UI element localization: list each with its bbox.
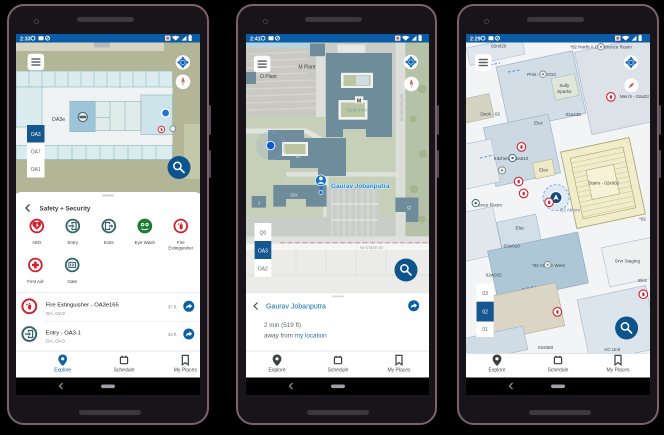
- svg-text:Entry - OA3-1: Entry - OA3-1: [46, 330, 81, 336]
- svg-text:Explore: Explore: [54, 368, 71, 374]
- svg-text:Schedule: Schedule: [548, 368, 569, 374]
- svg-text:away from my location: away from my location: [264, 333, 327, 340]
- svg-text:O Plant: O Plant: [260, 74, 277, 80]
- svg-text:Exits: Exits: [104, 240, 115, 245]
- svg-text:M Plant: M Plant: [298, 65, 316, 71]
- svg-text:O: O: [296, 154, 300, 160]
- svg-text:Elec: Elec: [516, 225, 526, 230]
- svg-text:Gaurav Jobanputra: Gaurav Jobanputra: [266, 304, 326, 311]
- svg-text:Fire Extinguisher - OA3e165: Fire Extinguisher - OA3e165: [46, 303, 119, 309]
- svg-text:Schedule: Schedule: [328, 368, 349, 374]
- svg-text:Extinguisher: Extinguisher: [168, 246, 193, 251]
- svg-text:OA3e: OA3e: [52, 117, 65, 123]
- svg-text:Schedule: Schedule: [114, 368, 135, 374]
- svg-text:O2 Atrium: O2 Atrium: [560, 208, 581, 213]
- svg-text:Safety + Security: Safety + Security: [40, 206, 91, 213]
- svg-text:37 ft: 37 ft: [168, 304, 178, 309]
- svg-text:Q0: Q0: [260, 231, 267, 237]
- svg-text:Gaurav Jobanputra: Gaurav Jobanputra: [331, 183, 390, 190]
- svg-text:First Aid: First Aid: [27, 279, 44, 284]
- svg-text:AED: AED: [32, 240, 42, 245]
- svg-text:Elec: Elec: [638, 278, 648, 283]
- svg-text:02a430: 02a430: [566, 112, 582, 117]
- svg-text:OA, OA3: OA, OA3: [46, 311, 66, 317]
- svg-text:J: J: [258, 201, 260, 206]
- svg-text:Elev: Elev: [539, 168, 549, 173]
- svg-text:2:33: 2:33: [20, 36, 31, 42]
- svg-text:02: 02: [482, 310, 488, 316]
- svg-text:02n020: 02n020: [491, 44, 507, 49]
- svg-text:Entry: Entry: [68, 240, 79, 245]
- svg-text:Deck - 02: Deck - 02: [480, 111, 500, 116]
- svg-text:*02: *02: [639, 216, 646, 221]
- svg-text:2 min (519 ft): 2 min (519 ft): [264, 322, 301, 329]
- svg-text:Eye Wash: Eye Wash: [135, 240, 156, 245]
- svg-text:2:41: 2:41: [250, 36, 261, 42]
- svg-text:Q: Q: [407, 205, 411, 211]
- svg-text:02w015: 02w015: [486, 273, 503, 278]
- svg-text:OA2: OA2: [258, 267, 268, 273]
- svg-text:OA7: OA7: [31, 150, 41, 156]
- svg-text:2:29: 2:29: [470, 36, 481, 42]
- svg-text:Turtle Pon: Turtle Pon: [346, 108, 367, 113]
- svg-text:Explore: Explore: [269, 368, 286, 374]
- svg-text:AC Unit: AC Unit: [604, 347, 621, 352]
- svg-text:My Places: My Places: [174, 368, 198, 374]
- svg-text:43 ft: 43 ft: [168, 332, 178, 337]
- svg-text:My Places: My Places: [606, 368, 630, 374]
- svg-text:My Places: My Places: [387, 368, 411, 374]
- svg-text:KETTLEVIEW RD: KETTLEVIEW RD: [400, 94, 404, 122]
- svg-text:W STATE ST: W STATE ST: [360, 245, 384, 250]
- svg-text:OA: OA: [291, 193, 299, 199]
- svg-text:Elec: Elec: [534, 121, 544, 126]
- svg-text:Men's - 02a33: Men's - 02a33: [620, 94, 649, 99]
- svg-text:OA1: OA1: [31, 167, 41, 173]
- svg-text:01: 01: [482, 327, 488, 333]
- svg-text:03: 03: [482, 291, 488, 297]
- svg-text:Gate: Gate: [67, 279, 77, 284]
- svg-text:OA, OA3: OA, OA3: [46, 339, 66, 345]
- svg-text:M: M: [357, 98, 361, 104]
- svg-text:Sully: Sully: [559, 83, 570, 88]
- svg-text:Srvr Staging: Srvr Staging: [615, 258, 641, 263]
- svg-text:Explore: Explore: [489, 368, 506, 374]
- svg-text:02w010: 02w010: [504, 243, 521, 248]
- svg-text:Fire: Fire: [177, 240, 185, 245]
- svg-text:02s080: 02s080: [538, 345, 554, 350]
- svg-text:OA3: OA3: [258, 249, 268, 255]
- svg-text:Stairs - 02x002: Stairs - 02x002: [588, 181, 619, 186]
- svg-text:OA3: OA3: [31, 132, 41, 138]
- svg-text:Sparks: Sparks: [557, 89, 572, 94]
